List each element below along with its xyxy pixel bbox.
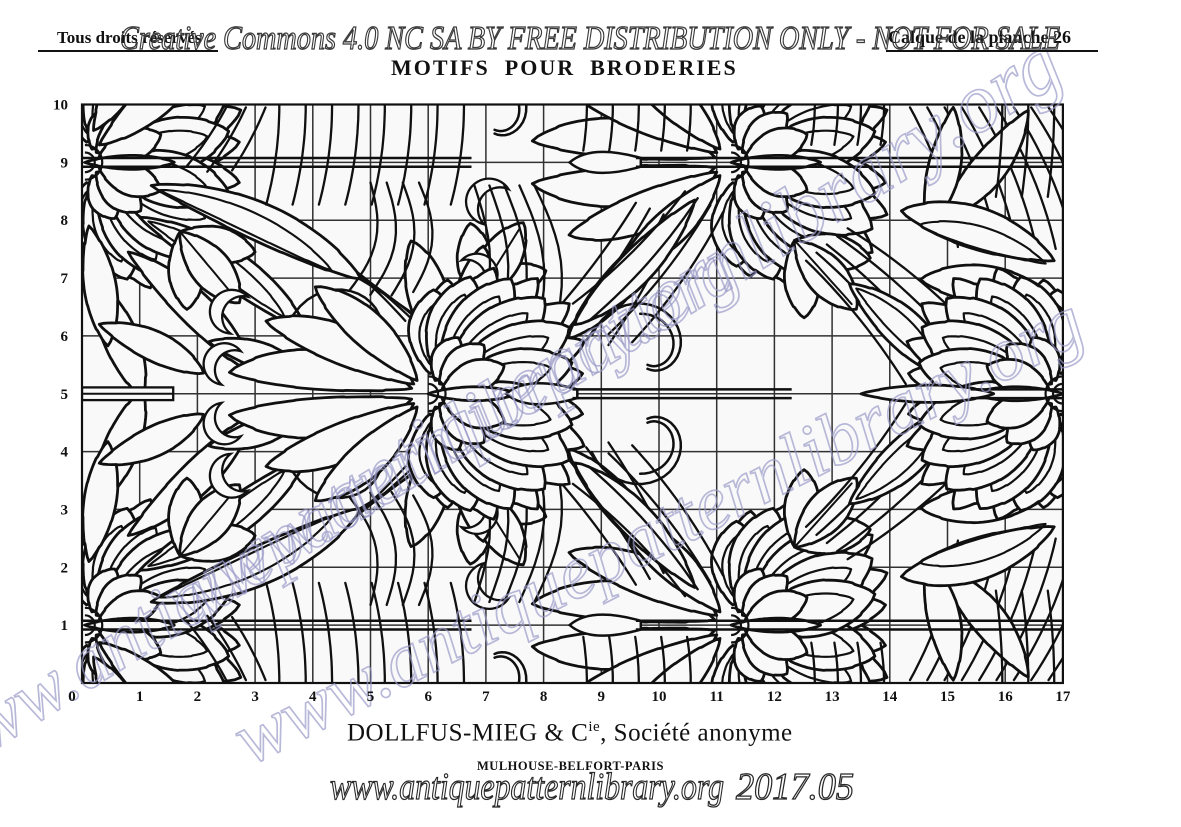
svg-text:Creative Commons 4.0 NC SA BY: Creative Commons 4.0 NC SA BY FREE DISTR… bbox=[120, 20, 1060, 57]
svg-text:2017.05: 2017.05 bbox=[736, 766, 854, 808]
